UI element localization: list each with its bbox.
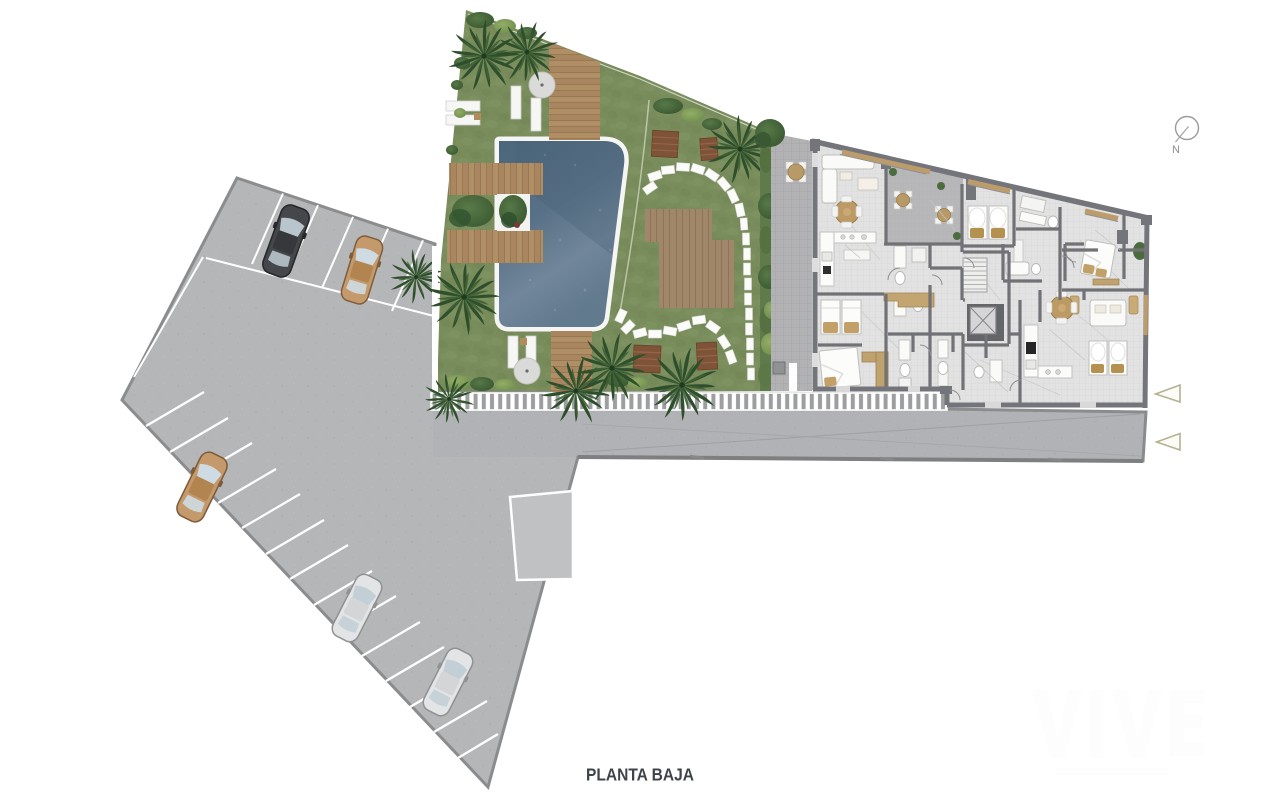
svg-text:N: N — [1172, 144, 1180, 156]
svg-text:PLANTA BAJA: PLANTA BAJA — [586, 765, 694, 785]
